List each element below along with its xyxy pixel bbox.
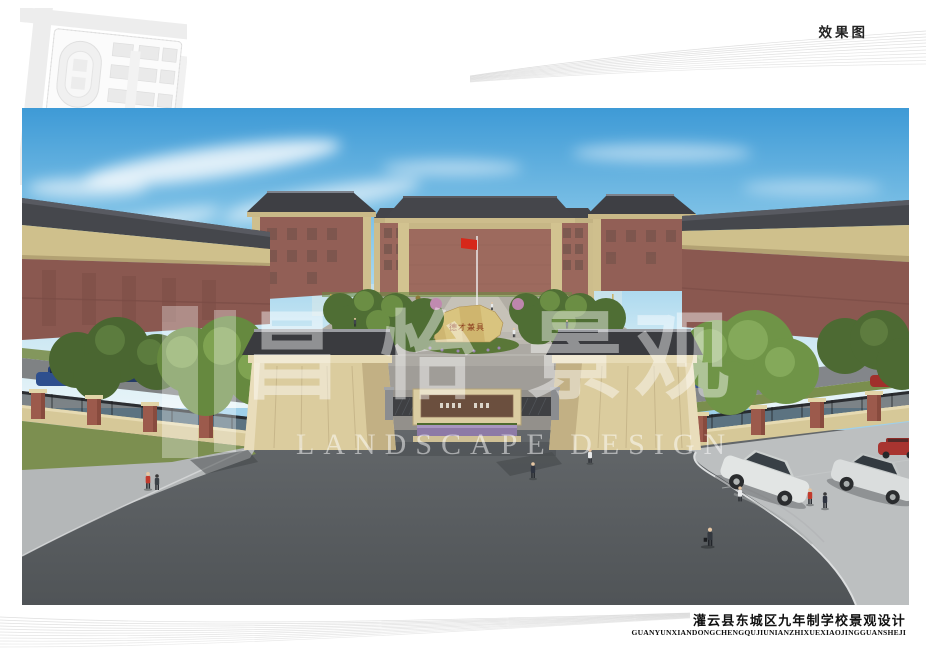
gate-flower-bed [413,423,521,442]
presentation-board: 效果图 [0,0,926,655]
project-title: 灌云县东城区九年制学校景观设计 [693,610,906,629]
china-flag [461,238,477,250]
rendering-image: 德才兼具 [22,108,909,605]
project-title-pinyin: GUANYUNXIANDONGCHENGQUJIUNIANZHIXUEXIAOJ… [631,628,906,637]
sheet-type-label: 效果图 [819,21,869,41]
building-right-mid [588,194,696,291]
decorative-swoosh-bottom-left [0,609,690,655]
gate-sign-wall [413,389,521,425]
gate-pylon-left [242,329,398,450]
campus-rendering-scene: 德才兼具 [22,108,909,605]
gate-pylon-right [546,329,703,450]
stone-inscription: 德才兼具 [449,322,485,332]
retractable-gate-right [517,397,551,416]
